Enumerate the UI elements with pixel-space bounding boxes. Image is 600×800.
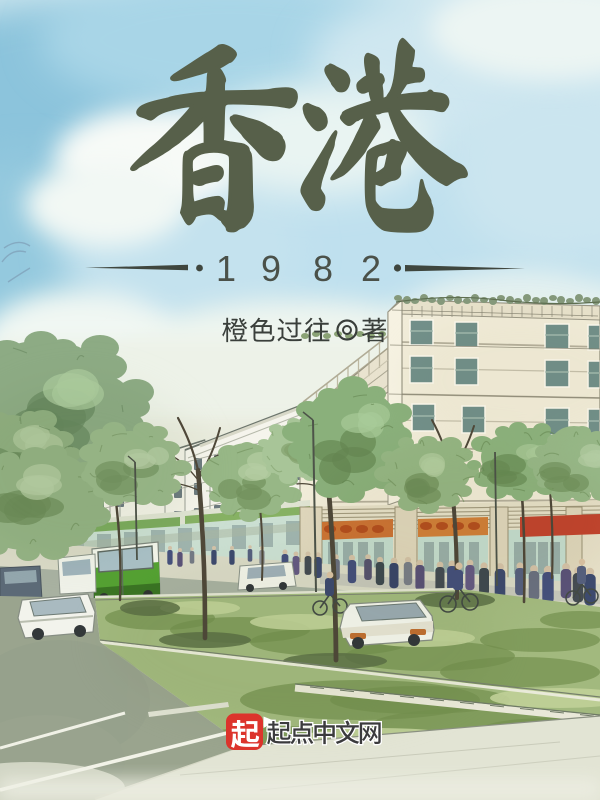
svg-text:2: 2: [361, 248, 381, 289]
svg-text:8: 8: [313, 248, 333, 289]
svg-text:9: 9: [261, 248, 281, 289]
svg-text:1: 1: [216, 248, 236, 289]
